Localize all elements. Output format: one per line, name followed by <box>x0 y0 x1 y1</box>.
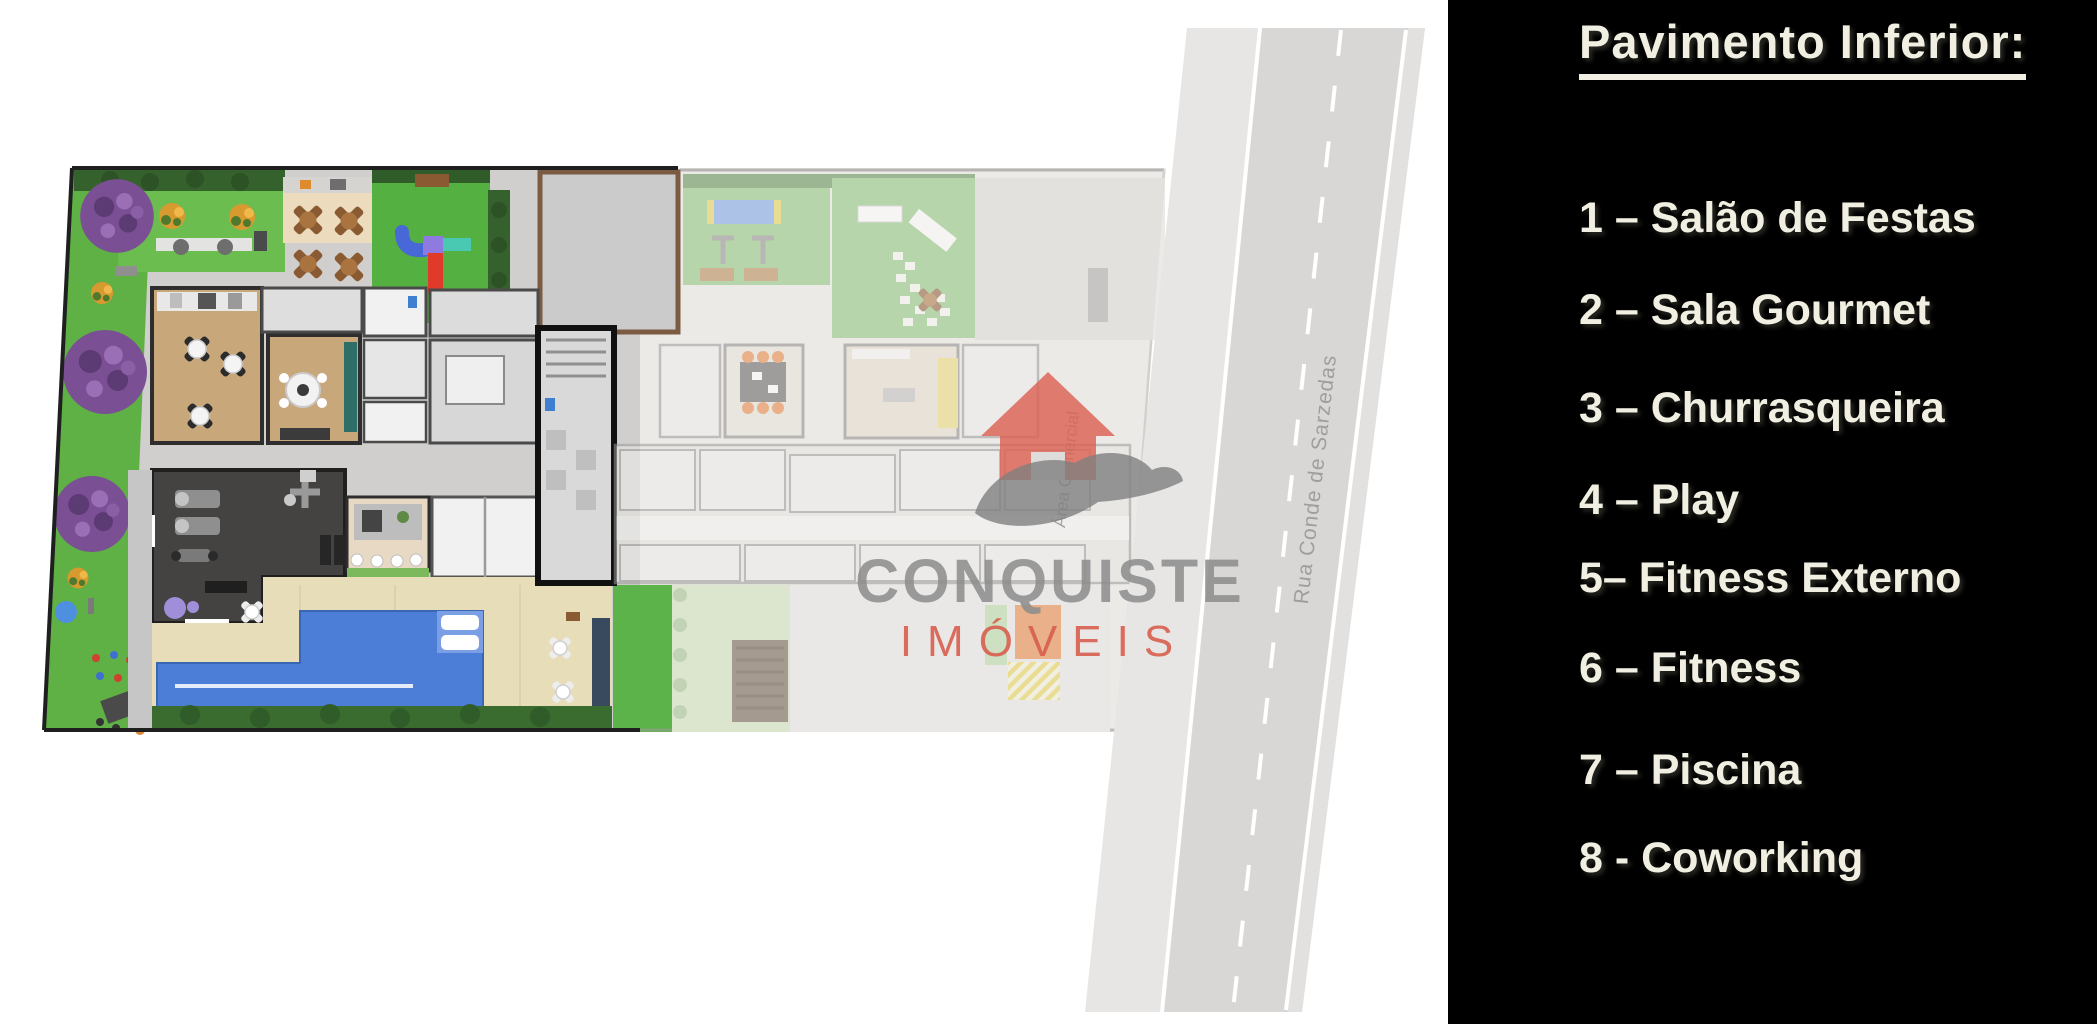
garden-lawn <box>832 178 975 338</box>
purple-tree <box>54 476 130 552</box>
purple-tree <box>80 179 154 253</box>
flower-bush <box>159 203 185 229</box>
flower-bush <box>91 282 113 304</box>
gourmet-room <box>268 335 360 443</box>
party-room <box>152 288 262 443</box>
side-path <box>128 470 152 732</box>
side-lawn <box>613 585 672 732</box>
real-estate-floorplan-slide: Rua Conde de Sarzedas Área Comercial CON… <box>0 0 2097 1024</box>
pool-lounger <box>441 635 479 650</box>
legend-item-play: 4 – Play <box>1579 477 1739 524</box>
faded-room <box>845 345 958 438</box>
coworking-room <box>725 345 803 437</box>
flower-bush <box>229 204 255 230</box>
legend-item-sala-gourmet: 2 – Sala Gourmet <box>1579 287 1930 334</box>
legend-item-salao-de-festas: 1 – Salão de Festas <box>1579 195 1976 242</box>
watermark-brand: CONQUISTE <box>855 547 1245 615</box>
watermark-subtitle: IMÓVEIS <box>900 617 1188 666</box>
legend-item-piscina: 7 – Piscina <box>1579 747 1801 794</box>
purple-tree <box>63 330 147 414</box>
upper-block <box>540 172 678 332</box>
hatched-area <box>1008 662 1060 700</box>
stair-core <box>538 328 614 583</box>
legend-title: Pavimento Inferior: <box>1579 14 2026 80</box>
flower-bush <box>68 568 89 589</box>
legend-panel: Pavimento Inferior: 1 – Salão de Festas … <box>1448 0 2097 1024</box>
faded-plaza <box>975 178 1165 340</box>
bottom-hedge <box>150 704 612 731</box>
pool-lounger <box>441 615 479 630</box>
bench <box>156 238 252 251</box>
faded-bottom-garden <box>672 585 790 732</box>
bbq-room <box>347 497 429 579</box>
legend-item-fitness-externo: 5– Fitness Externo <box>1579 555 1961 602</box>
legend-item-churrasqueira: 3 – Churrasqueira <box>1579 385 1945 432</box>
legend-item-fitness: 6 – Fitness <box>1579 645 1801 692</box>
legend-item-coworking: 8 - Coworking <box>1579 835 1863 882</box>
